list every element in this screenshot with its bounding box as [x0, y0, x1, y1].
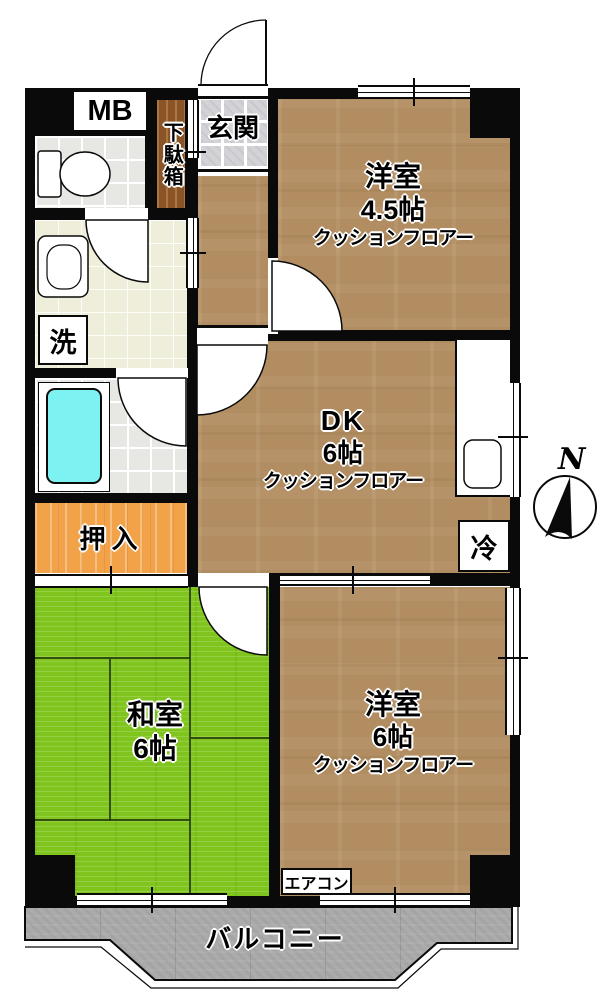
- room-size: 6帖: [297, 722, 489, 754]
- sliding-door: [186, 218, 199, 288]
- hallway-floor: [198, 176, 268, 325]
- tatami-joint: [35, 819, 190, 821]
- door-opening: [268, 258, 278, 334]
- shoe-cabinet-label: 下駄箱: [155, 100, 187, 210]
- sliding-door: [280, 574, 430, 586]
- laundry-box: 洗: [38, 315, 88, 365]
- entrance-label: 玄関: [196, 113, 270, 145]
- room-floor-type: クッションフロアー: [247, 470, 439, 493]
- compass-icon: [534, 476, 596, 539]
- toilet-floor: [35, 136, 145, 208]
- tatami-joint: [35, 657, 190, 659]
- window: [505, 588, 521, 735]
- floor-plan: MB 洗 冷 エアコン: [0, 0, 616, 1000]
- room-name: 洋室: [297, 160, 489, 194]
- door-opening: [197, 328, 268, 345]
- pillar: [470, 855, 520, 907]
- pillar: [25, 855, 75, 907]
- door-opening: [85, 208, 148, 220]
- wall-segment: [510, 88, 520, 907]
- western-room-large-label: 洋室 6帖 クッションフロアー: [297, 688, 489, 777]
- entry-door-swing-icon: [201, 20, 266, 86]
- room-floor-type: クッションフロアー: [297, 754, 489, 777]
- window: [358, 85, 470, 99]
- wall-segment: [25, 493, 198, 503]
- room-name: DK: [247, 404, 439, 438]
- laundry-label: 洗: [50, 321, 77, 360]
- window: [320, 893, 470, 907]
- balcony-label: バルコニー: [155, 924, 395, 956]
- room-name: 和室: [62, 698, 248, 732]
- meter-box-label: MB: [87, 95, 132, 128]
- room-name: 洋室: [297, 688, 489, 722]
- meter-box: MB: [72, 90, 148, 132]
- room-size: 4.5帖: [297, 194, 489, 227]
- window: [77, 893, 227, 907]
- room-size: 6帖: [62, 732, 248, 766]
- dining-kitchen-label: DK 6帖 クッションフロアー: [247, 404, 439, 493]
- closet-label: 押入: [35, 524, 188, 556]
- room-floor-type: クッションフロアー: [297, 227, 489, 250]
- japanese-room-label: 和室 6帖: [62, 698, 248, 766]
- refrigerator-box: 冷: [458, 520, 510, 572]
- bathtub: [46, 388, 102, 484]
- pillar: [470, 88, 520, 138]
- door-opening: [198, 573, 268, 586]
- refrigerator-label: 冷: [471, 527, 498, 566]
- door-opening: [116, 368, 188, 378]
- compass-north-label: N: [558, 442, 585, 477]
- wall-segment: [269, 573, 280, 897]
- air-conditioner-label: エアコン: [284, 870, 348, 894]
- entrance-step-line: [198, 169, 268, 172]
- western-room-small-label: 洋室 4.5帖 クッションフロアー: [297, 160, 489, 250]
- room-size: 6帖: [247, 438, 439, 470]
- air-conditioner-box: エアコン: [281, 868, 352, 895]
- entrance-threshold: [198, 84, 268, 98]
- kitchen-counter: [455, 340, 510, 497]
- sliding-door: [35, 574, 188, 588]
